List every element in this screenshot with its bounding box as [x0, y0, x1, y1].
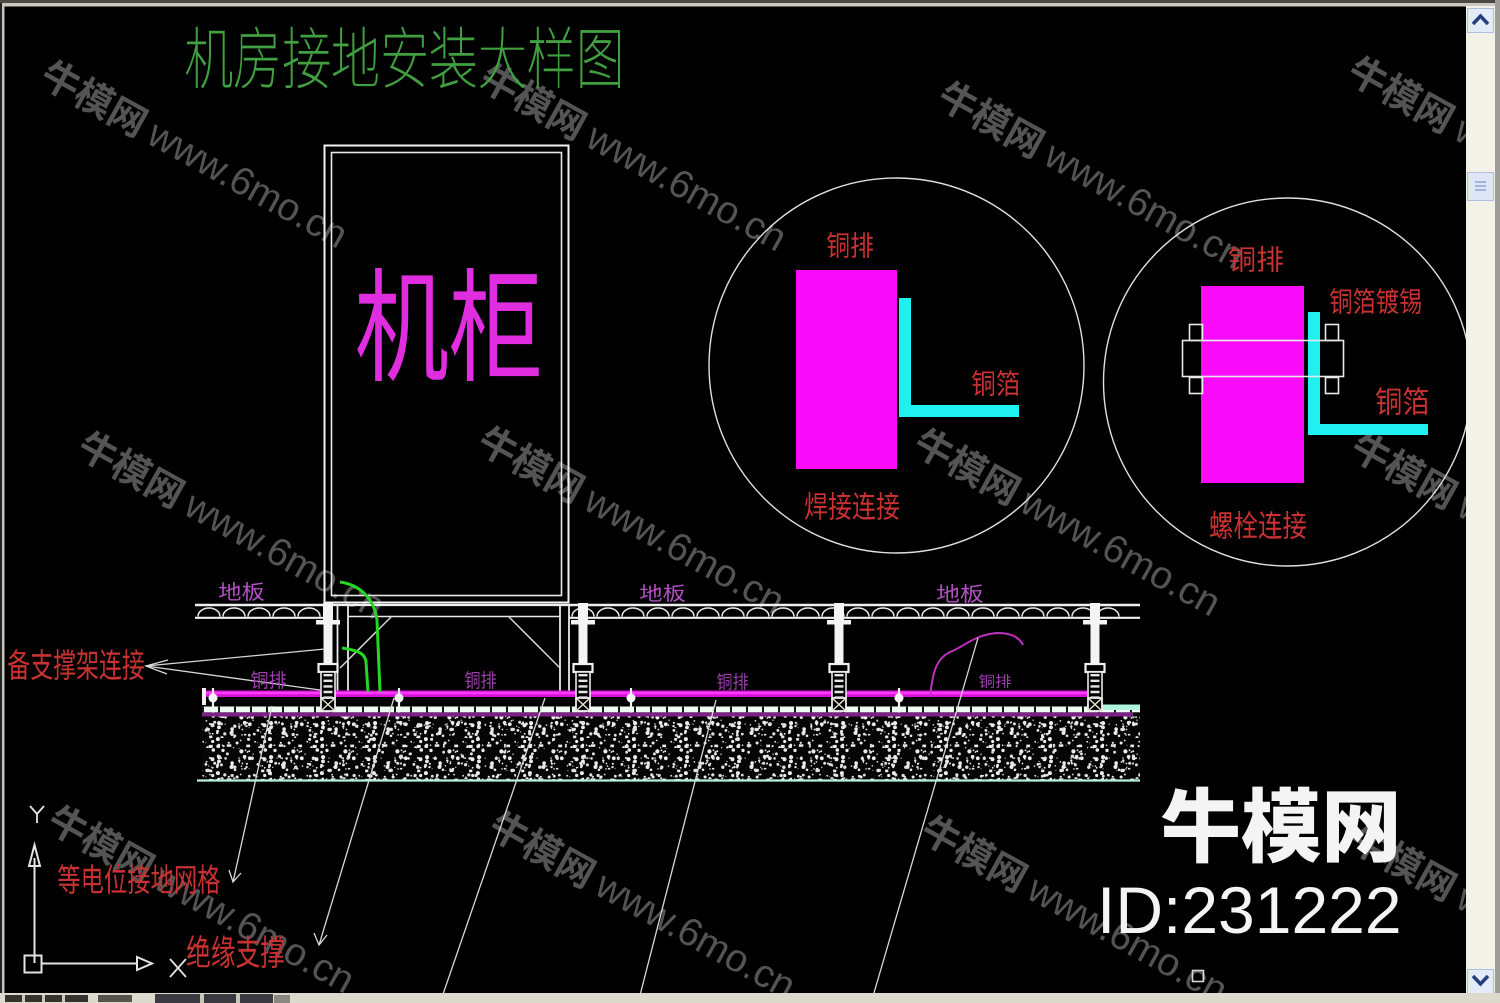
svg-text:ID:231222: ID:231222 [1097, 873, 1402, 947]
